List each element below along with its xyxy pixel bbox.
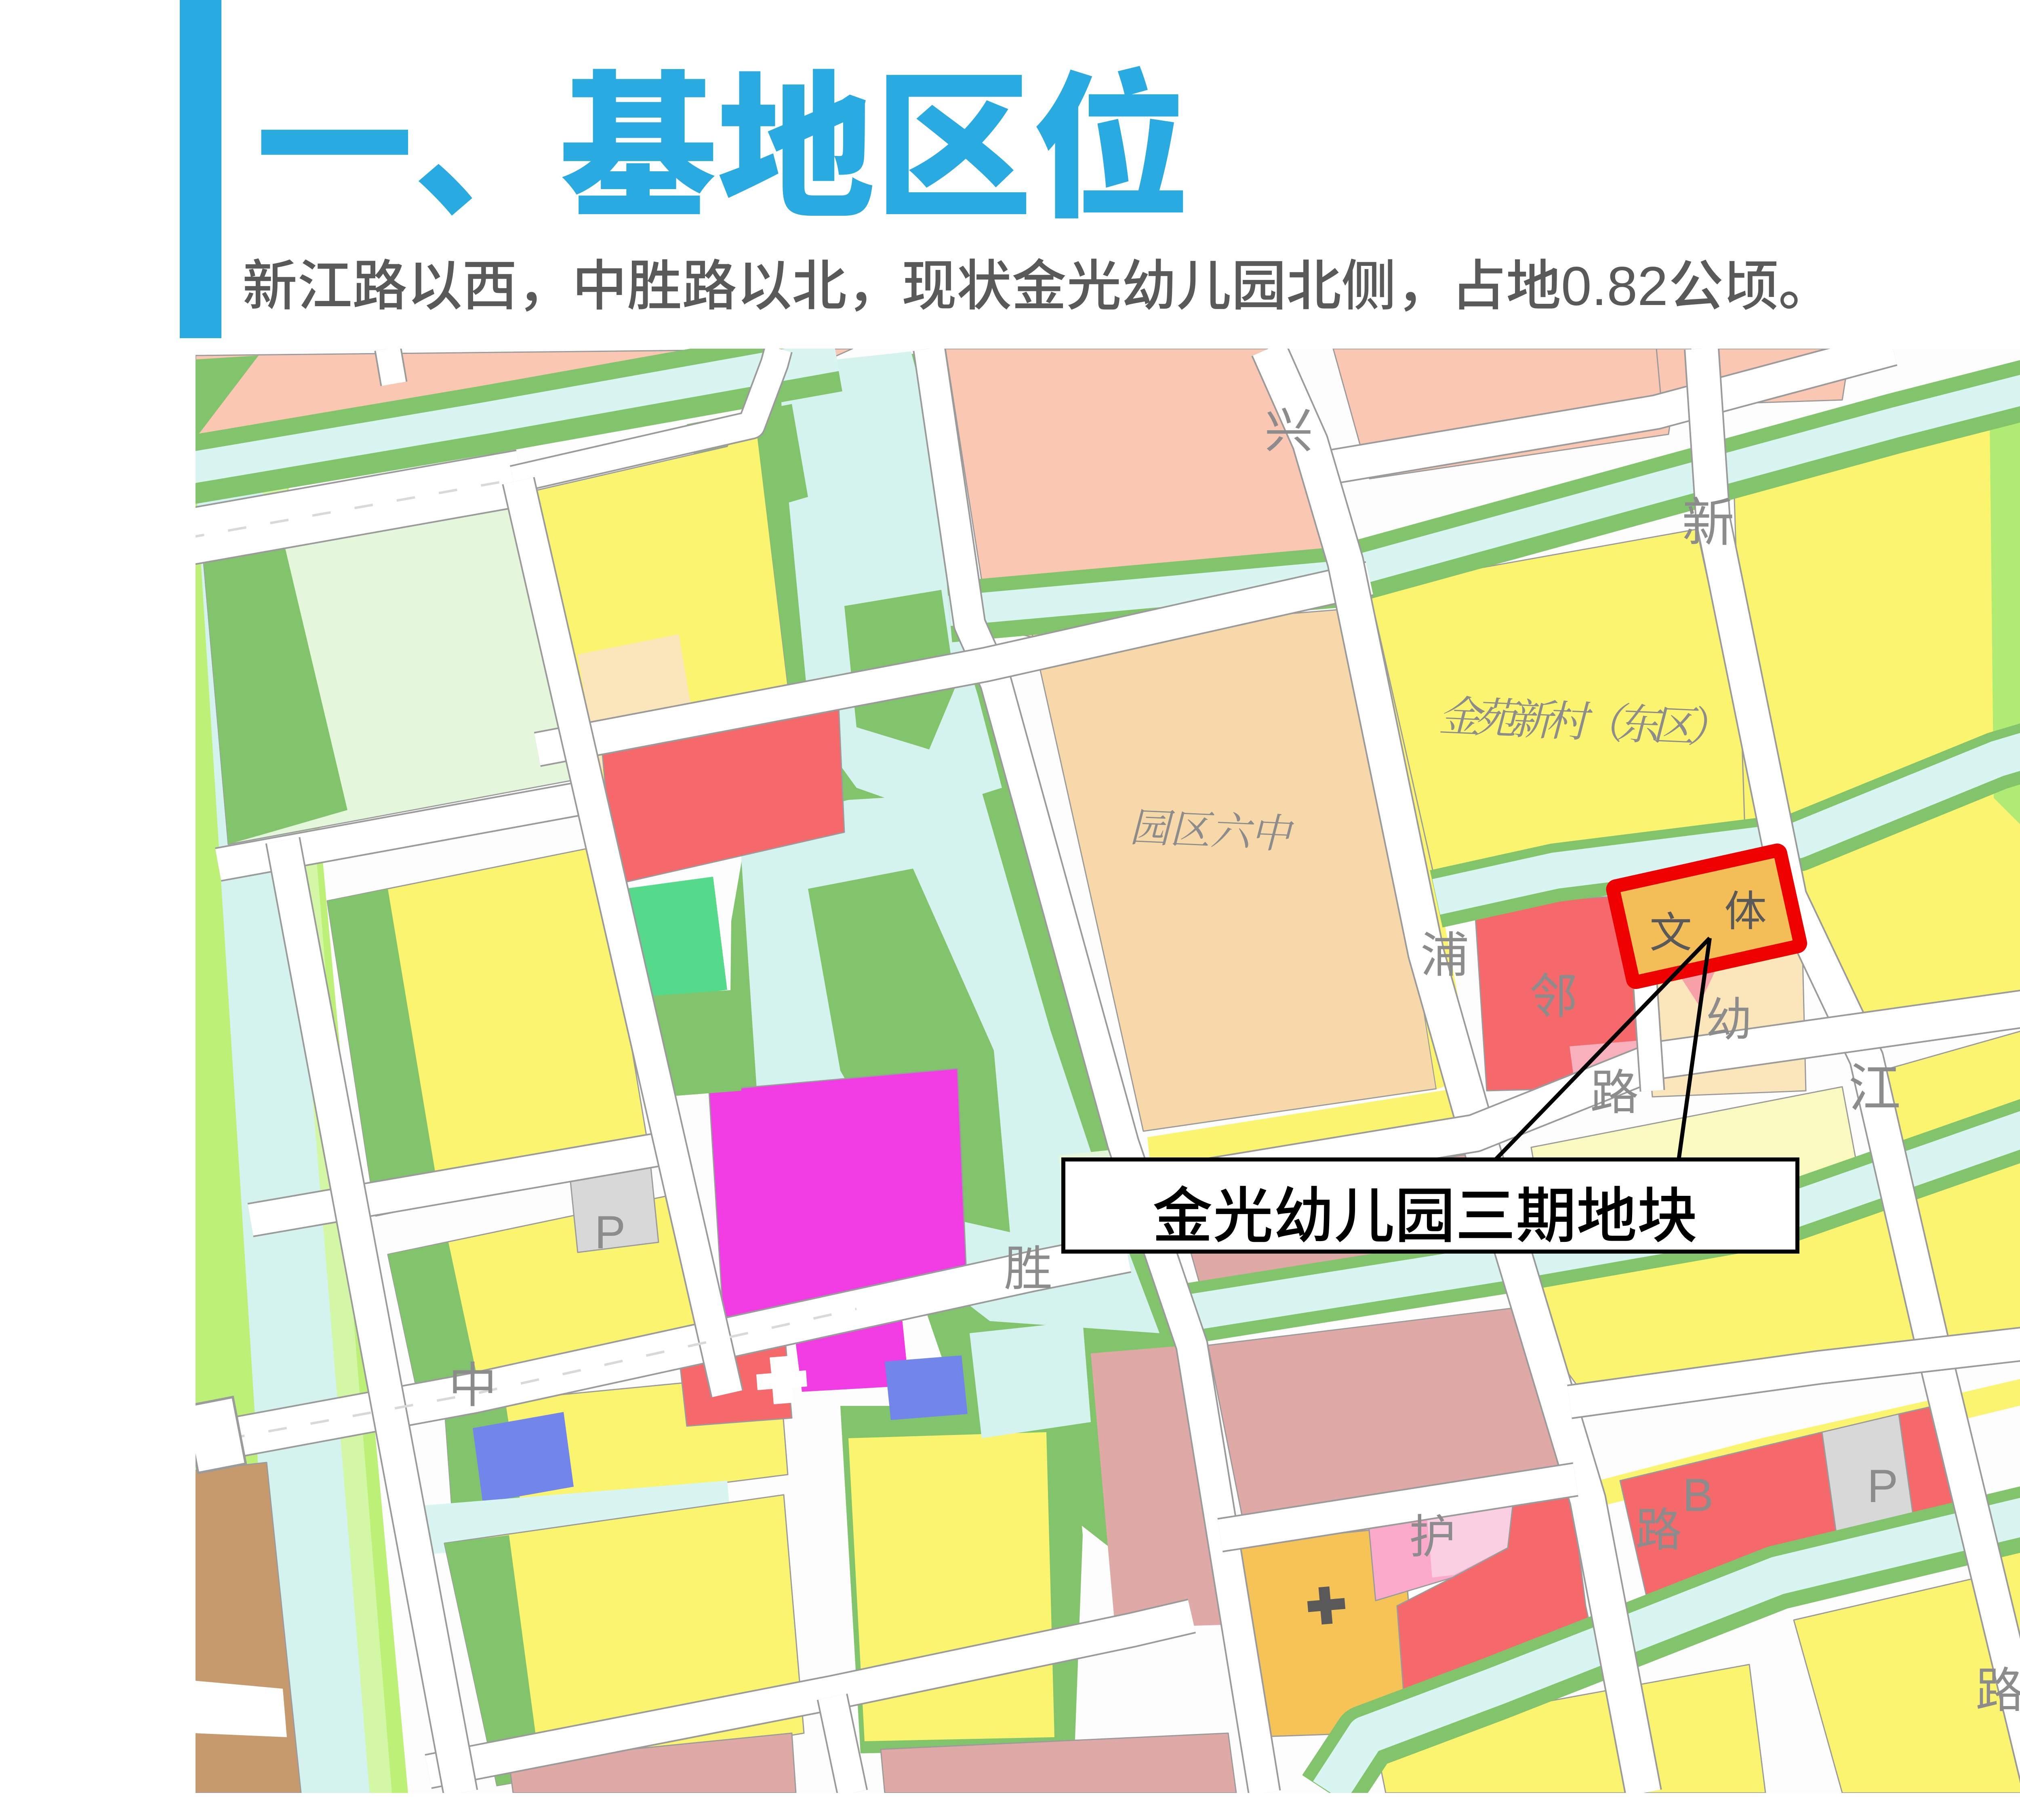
svg-text:P: P [1867,1460,1898,1512]
svg-text:B: B [1683,1469,1714,1521]
svg-text:P: P [595,1207,626,1258]
svg-text:0.82: 0.82 [1561,255,1668,317]
